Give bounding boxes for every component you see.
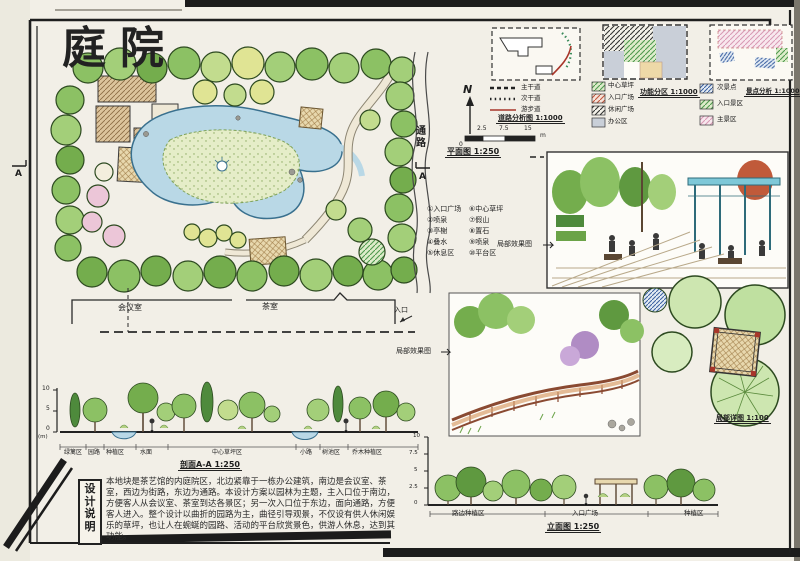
scenic-legend-1: 次景点 — [717, 84, 737, 91]
elev-scale-10: 10 — [413, 433, 420, 439]
plan-legend-1: ①入口广场 — [427, 205, 461, 213]
plan-legend-3: ③亭榭 — [427, 227, 447, 235]
notes-title: 设计说明 — [83, 483, 97, 534]
plan-legend-7: ⑦假山 — [469, 216, 489, 224]
section-caption: 剖面A-A 1:250 — [178, 460, 242, 471]
scenic-legend-3: 主景区 — [717, 116, 737, 123]
detail-plan — [643, 276, 785, 426]
elevation-trees — [435, 467, 715, 505]
section-marker-a-right: A — [419, 172, 426, 182]
scenic-analysis-caption: 景点分析 1:1000 — [744, 88, 800, 97]
elevation-drawing — [424, 437, 718, 517]
elev-label-1: 路边种植区 — [452, 510, 485, 517]
section-label-4: 水面 — [140, 450, 152, 457]
meeting-room-label: 会议室 — [118, 303, 142, 312]
detail-caption: 局部详图 1:100 — [714, 414, 771, 424]
section-drawing — [53, 382, 418, 450]
section-scale-unit: (m) — [38, 434, 48, 440]
elevation-caption: 立面图 1:250 — [545, 522, 601, 533]
section-scale-0: 0 — [46, 426, 50, 433]
road-analysis-caption: 道路分析图 1:1000 — [496, 114, 565, 124]
road-label: 通路 — [415, 126, 427, 149]
tea-room-label: 茶室 — [262, 302, 278, 311]
scenic-legend-2: 入口景区 — [717, 100, 743, 107]
elev-scale-75: 7.5 — [409, 450, 418, 456]
north-label: N — [463, 84, 472, 97]
plan-caption: 平面图 1:250 — [445, 147, 501, 158]
plan-legend-4: ④叠水 — [427, 238, 447, 246]
elev-scale-5: 5 — [414, 467, 418, 473]
effect-sketch-bottom — [449, 293, 644, 436]
effect-label-top: 局部效果图 — [497, 240, 532, 248]
plan-legend-8: ⑧置石 — [469, 227, 489, 235]
scale-t2: 7.5 — [499, 126, 509, 133]
section-label-8: 乔木种植区 — [352, 450, 382, 457]
entrance-label: 入口 — [394, 306, 408, 314]
function-zone-caption: 功能分区 1:1000 — [638, 88, 700, 98]
plan-legend-5: ⑤休息区 — [427, 249, 454, 257]
function-legend-3: 休闲广场 — [608, 106, 634, 113]
function-legend-1: 中心草坪 — [608, 82, 634, 89]
elev-scale-0: 0 — [414, 500, 418, 506]
section-scale-10: 10 — [42, 386, 50, 393]
function-legend-4: 办公区 — [608, 118, 628, 125]
north-arrow — [466, 96, 474, 134]
section-label-1: 绿篱区 — [64, 450, 82, 457]
plan-legend-6: ⑥中心草坪 — [469, 205, 503, 213]
section-label-2: 园路 — [88, 450, 100, 457]
road-legend-3: 游步道 — [521, 106, 541, 113]
plan-drawing — [12, 47, 430, 332]
notes-title-box: 设计说明 — [78, 479, 102, 545]
plan-legend-9: ⑨喷泉 — [469, 238, 489, 246]
scale-t1: 2.5 — [477, 126, 487, 133]
road-legend-2: 次干道 — [521, 95, 541, 102]
presentation-sheet: 庭院 A A 通路 N 0 2.5 7.5 15 m 平面图 1:250 主干道… — [0, 0, 800, 561]
elev-label-3: 种植区 — [684, 510, 704, 517]
section-label-5: 中心草坪区 — [212, 450, 242, 457]
function-zone-diagram — [592, 25, 687, 127]
effect-sketch-top — [547, 152, 788, 288]
plan-legend-2: ②喷泉 — [427, 216, 447, 224]
notes-body: 本地块是茶艺馆的内庭院区，北边紧靠于一栋办公建筑，南边是会议室、茶室，西边为街路… — [106, 477, 398, 543]
scale-t3: 15 — [524, 126, 532, 133]
elev-scale-25: 2.5 — [409, 484, 418, 490]
section-label-6: 小路 — [300, 450, 312, 457]
elev-label-2: 入口广场 — [572, 510, 598, 517]
section-scale-5: 5 — [46, 406, 50, 413]
scale-unit: m — [540, 133, 546, 140]
section-trees — [70, 382, 415, 432]
sheet-title: 庭院 — [62, 24, 178, 75]
scenic-analysis-diagram — [700, 25, 792, 125]
section-label-7: 树池区 — [322, 450, 340, 457]
function-legend-2: 入口广场 — [608, 94, 634, 101]
section-label-3: 种植区 — [106, 450, 124, 457]
plaza-crosshatch-2 — [299, 107, 323, 129]
plan-legend-10: ⑩平台区 — [469, 249, 496, 257]
effect-label-bottom: 局部效果图 — [396, 347, 431, 355]
section-marker-a-left: A — [15, 169, 22, 179]
road-legend-1: 主干道 — [521, 84, 541, 91]
